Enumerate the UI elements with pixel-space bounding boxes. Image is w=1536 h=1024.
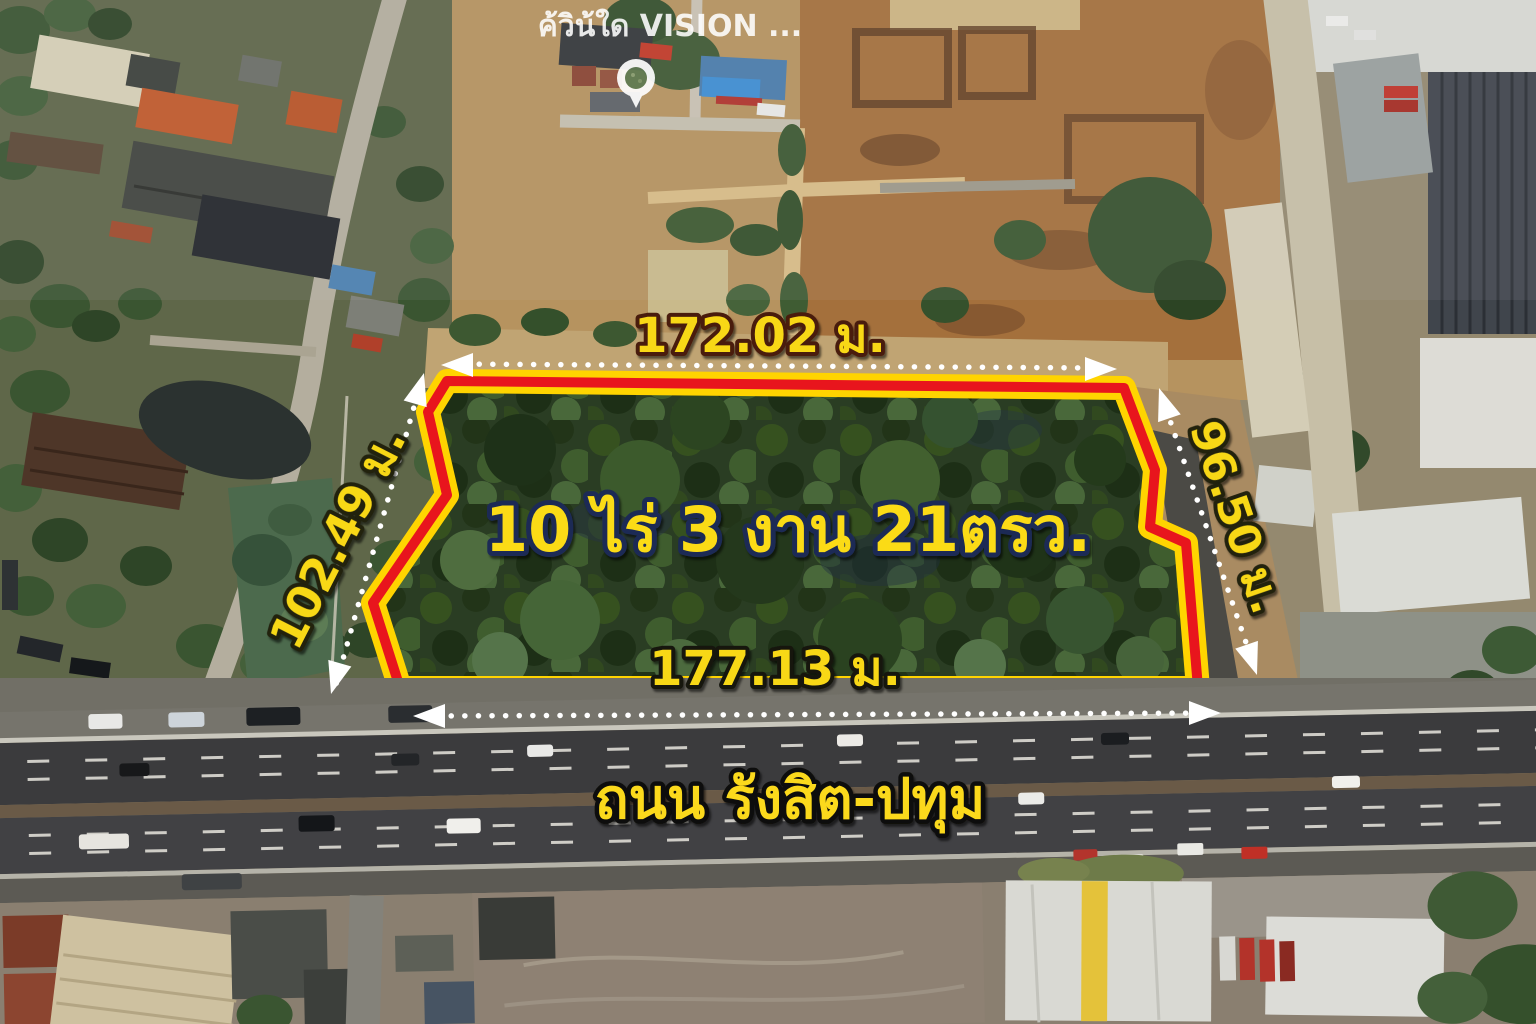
plot-area-label: 10 ไร่ 3 งาน 21ตรว.: [485, 493, 1091, 566]
atmospheric-haze: [0, 0, 1536, 300]
highway: [0, 679, 1536, 1024]
white-warehouse-roof: [1332, 497, 1530, 615]
road-name-label: ถนน รังสิต-ปทุม: [595, 767, 986, 834]
dimension-bottom-label: 177.13 ม.: [649, 641, 901, 697]
watermark-text: ค้วิน้ใด VISION ...: [538, 8, 802, 44]
dimension-top-label: 172.02 ม.: [634, 308, 886, 364]
aerial-land-listing-photo: 172.02 ม. 102.49 ม. 96.50 ม. 177.13 ม. 1…: [0, 0, 1536, 1024]
aerial-scene: 172.02 ม. 102.49 ม. 96.50 ม. 177.13 ม. 1…: [0, 0, 1536, 1024]
